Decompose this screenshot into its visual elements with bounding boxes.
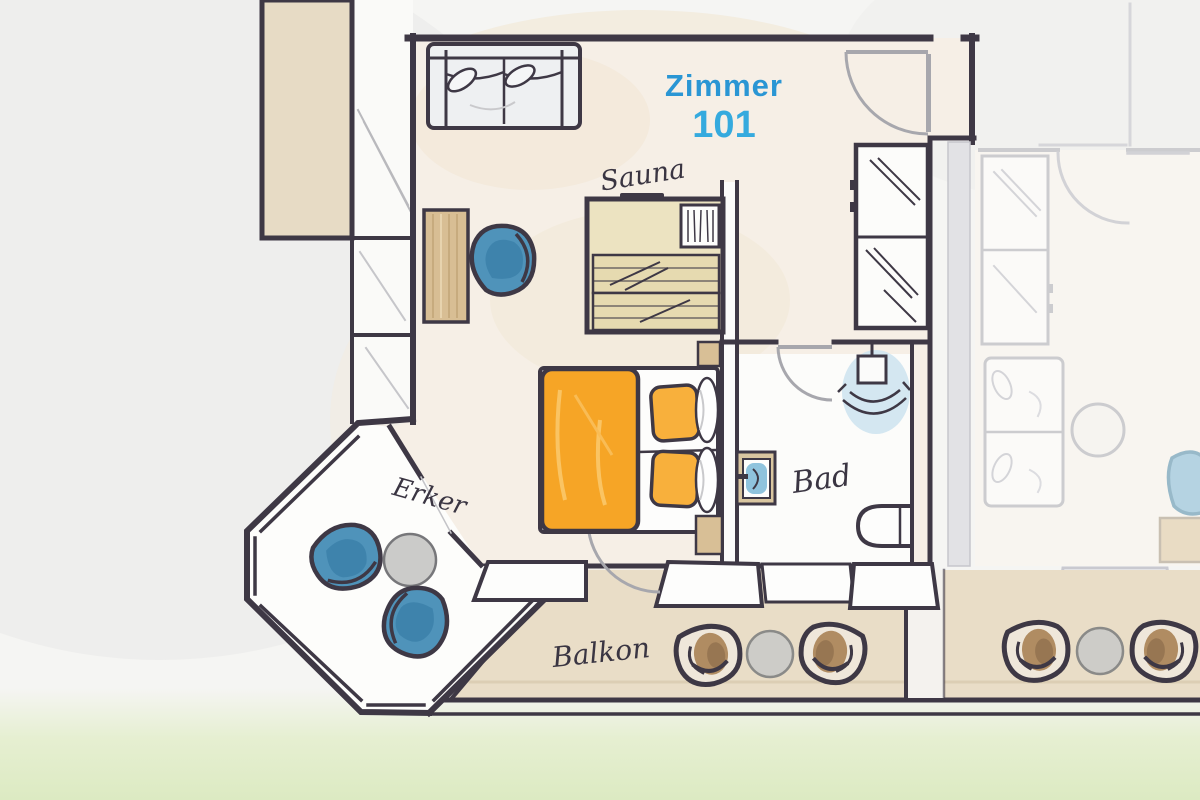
- accent-pillow: [651, 451, 700, 507]
- adjacent-sofa: [985, 358, 1063, 506]
- balcony-window-sills: [474, 562, 938, 608]
- adjacent-desk: [1160, 518, 1200, 562]
- sink: [735, 452, 775, 504]
- toilet: [858, 506, 912, 546]
- balcony-table: [1077, 628, 1123, 674]
- floorplan-drawing: [0, 0, 1200, 800]
- bay-table: [384, 534, 436, 586]
- sauna-benches: [593, 255, 719, 330]
- floor-plan: Zimmer 101 Sauna Bad Erker Balkon: [0, 0, 1200, 800]
- pillow: [696, 448, 718, 512]
- adjacent-armchair: [1168, 452, 1200, 514]
- sauna-door-handle: [620, 193, 664, 201]
- lawn: [0, 688, 1200, 800]
- desk: [424, 210, 468, 322]
- wardrobe: [850, 145, 928, 328]
- balcony-table: [747, 631, 793, 677]
- wicker-chair: [1003, 620, 1070, 682]
- sofa: [428, 44, 580, 128]
- nightstand: [698, 342, 720, 366]
- desk-chair: [472, 226, 534, 295]
- double-bed: [540, 342, 722, 554]
- sauna: [587, 193, 723, 332]
- accent-pillow: [650, 384, 700, 441]
- adjacent-wardrobe: [982, 156, 1053, 344]
- pillow: [696, 378, 718, 442]
- adjacent-table: [1072, 404, 1124, 456]
- luggage-bench: [696, 516, 722, 554]
